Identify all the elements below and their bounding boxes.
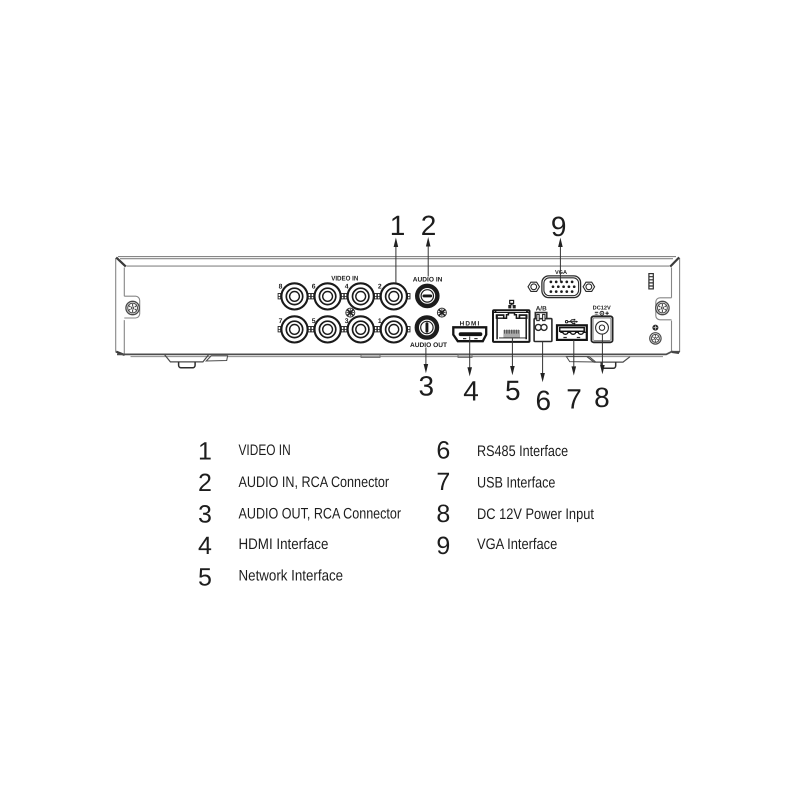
svg-text:1: 1 (390, 210, 406, 241)
svg-text:A/B: A/B (536, 305, 547, 312)
svg-text:AUDIO OUT, RCA Connector: AUDIO OUT, RCA Connector (239, 506, 402, 523)
svg-text:4: 4 (463, 376, 479, 407)
svg-text:3: 3 (345, 318, 349, 325)
svg-text:7: 7 (279, 318, 283, 325)
svg-text:VIDEO IN: VIDEO IN (239, 442, 291, 459)
svg-text:AUDIO IN, RCA Connector: AUDIO IN, RCA Connector (239, 474, 390, 491)
svg-text:3: 3 (198, 501, 212, 529)
svg-text:USB Interface: USB Interface (477, 475, 555, 492)
svg-text:4: 4 (345, 283, 349, 290)
svg-text:RS485 Interface: RS485 Interface (477, 443, 568, 460)
svg-text:DC 12V Power Input: DC 12V Power Input (477, 506, 595, 523)
svg-text:2: 2 (198, 469, 212, 497)
svg-text:8: 8 (436, 500, 450, 528)
svg-text:HDMI Interface: HDMI Interface (239, 536, 329, 553)
svg-text:4: 4 (198, 532, 212, 560)
svg-text:Network Interface: Network Interface (239, 568, 344, 585)
svg-text:AUDIO IN: AUDIO IN (413, 277, 443, 284)
svg-text:5: 5 (198, 564, 212, 592)
svg-text:3: 3 (419, 370, 435, 401)
svg-text:9: 9 (551, 211, 567, 242)
svg-text:7: 7 (566, 384, 582, 415)
svg-text:6: 6 (536, 385, 552, 416)
svg-text:8: 8 (594, 382, 610, 413)
svg-text:1: 1 (198, 437, 212, 465)
svg-text:5: 5 (312, 318, 316, 325)
svg-text:5: 5 (505, 375, 521, 406)
svg-text:6: 6 (312, 283, 316, 290)
svg-text:DC12V: DC12V (593, 306, 611, 312)
svg-text:VIDEO IN: VIDEO IN (331, 276, 358, 283)
svg-text:6: 6 (436, 436, 450, 464)
svg-text:9: 9 (436, 532, 450, 560)
svg-text:8: 8 (279, 283, 283, 290)
svg-text:2: 2 (378, 283, 382, 290)
svg-text:1: 1 (378, 318, 382, 325)
svg-text:VGA Interface: VGA Interface (477, 536, 557, 553)
svg-text:AUDIO OUT: AUDIO OUT (410, 342, 447, 349)
svg-text:7: 7 (436, 468, 450, 496)
svg-text:2: 2 (421, 210, 437, 241)
